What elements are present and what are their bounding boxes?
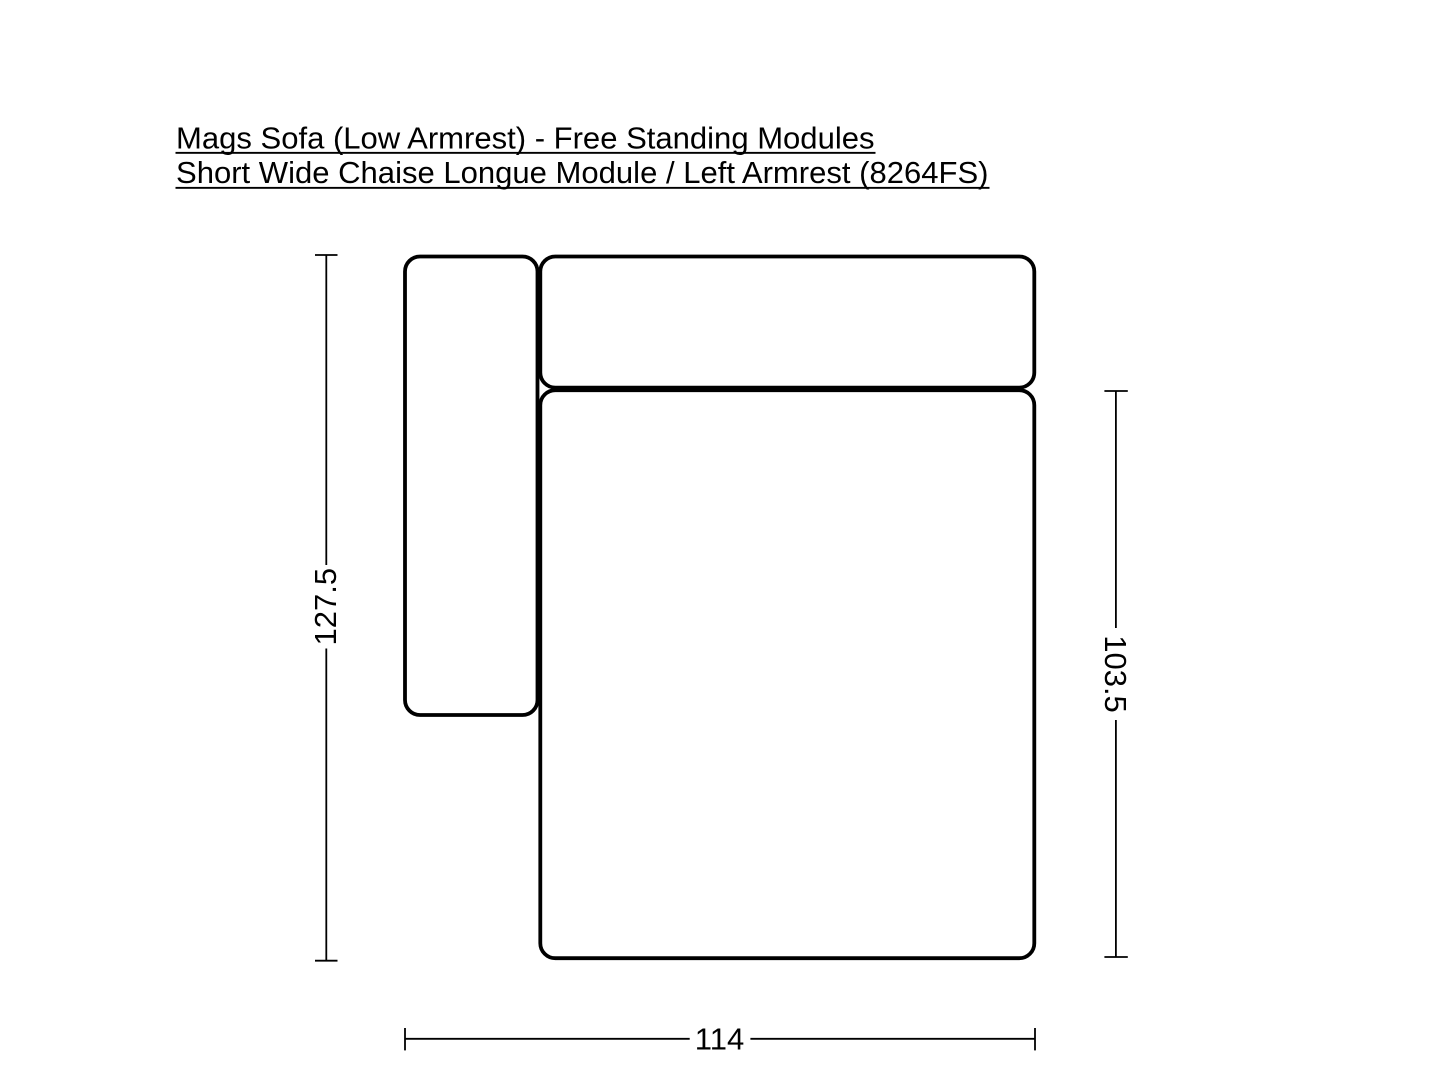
svg-text:Mags Sofa (Low Armrest) - Free: Mags Sofa (Low Armrest) - Free Standing … [176,120,875,155]
svg-text:103.5: 103.5 [1098,635,1133,713]
svg-text:Short Wide Chaise Longue Modul: Short Wide Chaise Longue Module / Left A… [176,155,989,190]
svg-text:127.5: 127.5 [308,568,343,646]
svg-text:114: 114 [695,1021,744,1056]
